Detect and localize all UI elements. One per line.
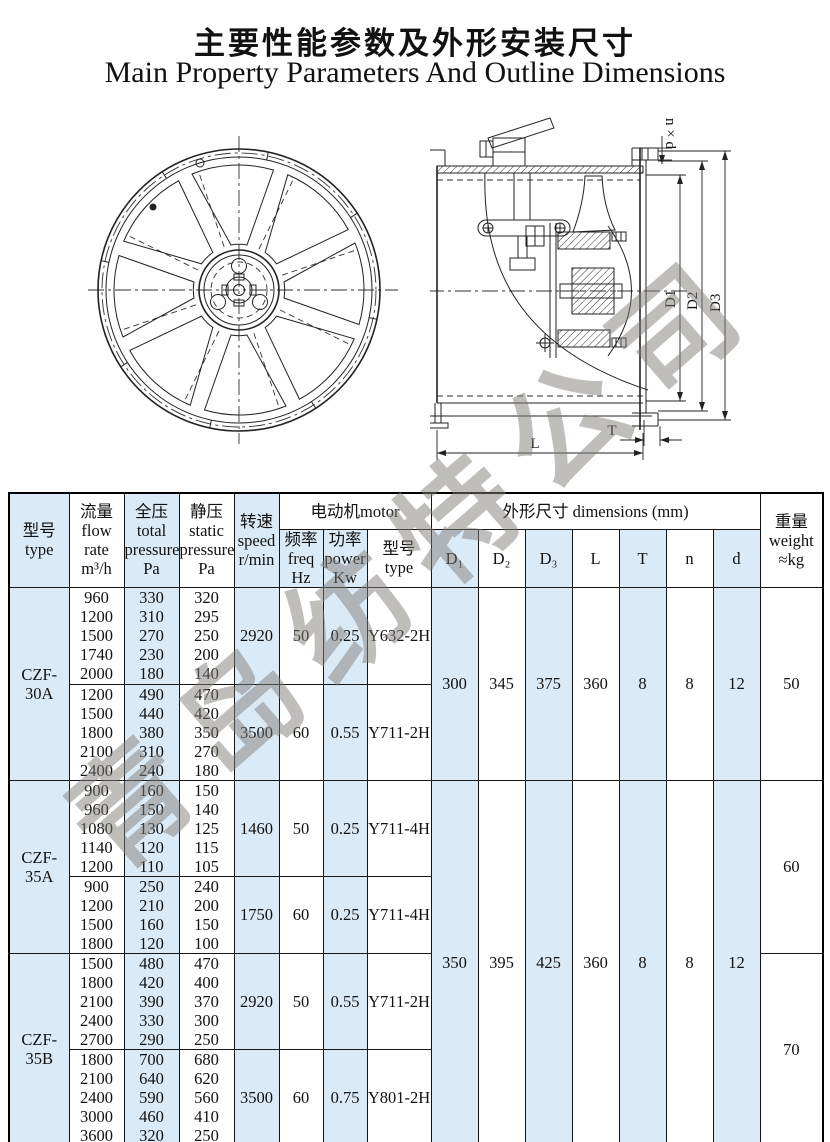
- freq-cell: 50: [279, 953, 323, 1049]
- d1-dimension-label: D1: [663, 290, 679, 308]
- total-values: 490 440 380 310 240: [124, 684, 179, 780]
- fan-front-view-drawing: [86, 128, 401, 448]
- col-header-static-pressure: 静压 static pressure Pa: [179, 493, 234, 587]
- col-group-dimensions: 外形尺寸 dimensions (mm): [431, 493, 760, 529]
- model-cell: CZF-35A: [9, 780, 69, 953]
- fan-side-view-svg: n × d D1 D2 D3: [430, 108, 760, 493]
- freq-cell: 50: [279, 780, 323, 876]
- power-cell: 0.55: [323, 684, 367, 780]
- col-header-motor-type: 型号 type: [367, 529, 431, 587]
- motor-type-cell: Y711-2H: [367, 953, 431, 1049]
- model-cell: CZF-30A: [9, 587, 69, 780]
- speed-cell: 2920: [234, 587, 279, 684]
- static-values: 240 200 150 100: [179, 876, 234, 953]
- col-header-flow: 流量 flow rate m³/h: [69, 493, 124, 587]
- col-header-d2: D₂: [478, 529, 525, 587]
- document-page: 主要性能参数及外形安装尺寸 Main Property Parameters A…: [0, 0, 830, 1142]
- static-values: 470 420 350 270 180: [179, 684, 234, 780]
- power-cell: 0.75: [323, 1049, 367, 1142]
- power-cell: 0.25: [323, 780, 367, 876]
- static-values: 150 140 125 115 105: [179, 780, 234, 876]
- col-header-total-pressure: 全压 total pressure Pa: [124, 493, 179, 587]
- T-cell: 8: [619, 587, 666, 780]
- motor-type-cell: Y801-2H: [367, 1049, 431, 1142]
- col-header-d1: D₁: [431, 529, 478, 587]
- freq-cell: 60: [279, 684, 323, 780]
- static-values: 680 620 560 410 250: [179, 1049, 234, 1142]
- col-header-n: n: [666, 529, 713, 587]
- col-header-power: 功率 power Kw: [323, 529, 367, 587]
- power-cell: 0.25: [323, 587, 367, 684]
- weight-cell: 70: [760, 953, 823, 1142]
- motor-type-cell: Y711-2H: [367, 684, 431, 780]
- speed-cell: 1460: [234, 780, 279, 876]
- d2-cell: 345: [478, 587, 525, 780]
- model-cell: CZF-35B: [9, 953, 69, 1142]
- L-cell: 360: [572, 780, 619, 1142]
- d-cell: 12: [713, 587, 760, 780]
- weight-cell: 50: [760, 587, 823, 780]
- d-cell: 12: [713, 780, 760, 1142]
- speed-cell: 1750: [234, 876, 279, 953]
- static-values: 470 400 370 300 250: [179, 953, 234, 1049]
- motor-type-cell: Y711-4H: [367, 876, 431, 953]
- d1-cell: 350: [431, 780, 478, 1142]
- col-header-L: L: [572, 529, 619, 587]
- motor-type-cell: Y711-4H: [367, 780, 431, 876]
- page-title-english: Main Property Parameters And Outline Dim…: [0, 56, 830, 90]
- total-values: 480 420 390 330 290: [124, 953, 179, 1049]
- L-cell: 360: [572, 587, 619, 780]
- freq-cell: 60: [279, 876, 323, 953]
- flow-values: 1500 1800 2100 2400 2700: [69, 953, 124, 1049]
- header-row-groups: 型号 type 流量 flow rate m³/h 全压 total press…: [9, 493, 823, 529]
- d3-cell: 375: [525, 587, 572, 780]
- d2-cell: 395: [478, 780, 525, 1142]
- length-dimension-label: L: [530, 436, 539, 452]
- col-header-speed: 转速 speed r/min: [234, 493, 279, 587]
- static-values: 320 295 250 200 140: [179, 587, 234, 684]
- T-cell: 8: [619, 780, 666, 1142]
- n-cell: 8: [666, 780, 713, 1142]
- col-header-T: T: [619, 529, 666, 587]
- total-values: 330 310 270 230 180: [124, 587, 179, 684]
- fan-spec-table: 型号 type 流量 flow rate m³/h 全压 total press…: [8, 492, 824, 1142]
- d3-dimension-label: D3: [708, 294, 724, 312]
- weight-cell: 60: [760, 780, 823, 953]
- col-header-d: d: [713, 529, 760, 587]
- freq-cell: 60: [279, 1049, 323, 1142]
- d3-cell: 425: [525, 780, 572, 1142]
- speed-cell: 2920: [234, 953, 279, 1049]
- n-cell: 8: [666, 587, 713, 780]
- total-values: 700 640 590 460 320: [124, 1049, 179, 1142]
- table-row: CZF-30A 960 1200 1500 1740 2000 330 310 …: [9, 587, 823, 684]
- fan-front-view-svg: [86, 128, 401, 448]
- fan-side-view-drawing: n × d D1 D2 D3: [430, 108, 760, 493]
- power-cell: 0.55: [323, 953, 367, 1049]
- power-cell: 0.25: [323, 876, 367, 953]
- d1-cell: 300: [431, 587, 478, 780]
- speed-cell: 3500: [234, 684, 279, 780]
- nxd-dimension-label: n × d: [662, 118, 678, 149]
- total-values: 160 150 130 120 110: [124, 780, 179, 876]
- flow-values: 1800 2100 2400 3000 3600: [69, 1049, 124, 1142]
- col-header-weight: 重量 weight ≈kg: [760, 493, 823, 587]
- table-row: CZF-35A 900 960 1080 1140 1200 160 150 1…: [9, 780, 823, 876]
- speed-cell: 3500: [234, 1049, 279, 1142]
- motor-type-cell: Y632-2H: [367, 587, 431, 684]
- flow-values: 900 960 1080 1140 1200: [69, 780, 124, 876]
- col-group-motor: 电动机motor: [279, 493, 431, 529]
- col-header-frequency: 频率 freq Hz: [279, 529, 323, 587]
- freq-cell: 50: [279, 587, 323, 684]
- col-header-d3: D₃: [525, 529, 572, 587]
- flow-values: 960 1200 1500 1740 2000: [69, 587, 124, 684]
- flow-values: 1200 1500 1800 2100 2400: [69, 684, 124, 780]
- total-values: 250 210 160 120: [124, 876, 179, 953]
- flow-values: 900 1200 1500 1800: [69, 876, 124, 953]
- thickness-dimension-label: T: [607, 423, 616, 439]
- col-header-type: 型号 type: [9, 493, 69, 587]
- d2-dimension-label: D2: [685, 292, 701, 310]
